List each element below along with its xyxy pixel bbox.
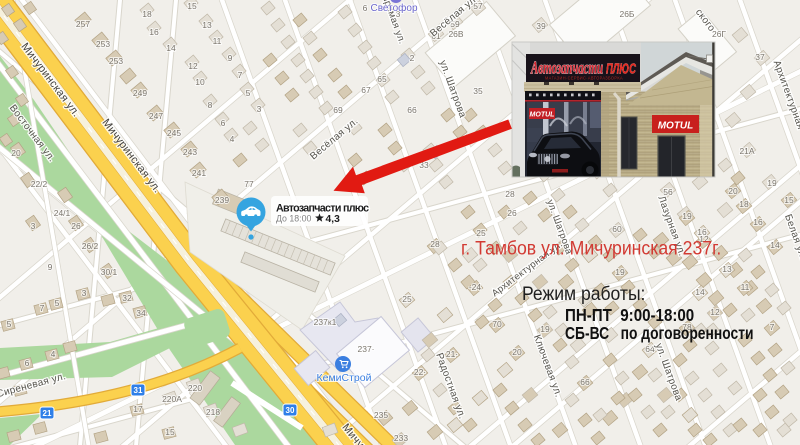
svg-text:Светофор: Светофор [370,2,417,14]
svg-text:31: 31 [134,386,143,395]
svg-text:16: 16 [697,227,707,237]
svg-text:35: 35 [473,86,483,96]
svg-text:60: 60 [612,224,622,234]
svg-text:19: 19 [767,178,777,188]
svg-text:24/1: 24/1 [54,208,71,218]
svg-text:11: 11 [213,36,222,46]
svg-text:7: 7 [238,70,243,80]
svg-text:26В: 26В [448,29,463,39]
svg-text:15: 15 [784,195,794,205]
svg-text:20: 20 [11,148,21,158]
svg-text:245: 245 [167,128,181,138]
svg-text:18: 18 [739,199,749,209]
svg-text:34: 34 [136,308,146,318]
svg-text:15: 15 [187,1,197,11]
svg-text:39: 39 [536,21,546,31]
svg-text:10: 10 [195,77,205,87]
svg-text:77: 77 [244,179,254,189]
svg-text:18: 18 [142,9,152,19]
svg-text:30/1: 30/1 [101,267,118,277]
svg-text:11: 11 [741,282,750,292]
svg-text:г. Тамбов ул. Мичуринская 237г: г. Тамбов ул. Мичуринская 237г. [461,237,721,259]
svg-text:6: 6 [25,358,30,368]
svg-text:9: 9 [48,262,53,272]
svg-text:4: 4 [230,134,235,144]
svg-text:20: 20 [728,186,738,196]
svg-text:26: 26 [71,221,81,231]
svg-text:26/2: 26/2 [82,241,99,251]
svg-text:253: 253 [96,39,110,49]
svg-text:37: 37 [755,52,765,62]
svg-text:235: 235 [374,410,388,420]
svg-text:6: 6 [363,3,368,13]
svg-text:26Г: 26Г [712,29,726,39]
svg-text:9: 9 [228,53,233,63]
svg-text:12: 12 [710,307,720,317]
svg-text:28: 28 [505,189,515,199]
svg-text:26: 26 [507,208,517,218]
svg-text:3: 3 [31,221,36,231]
svg-text:257: 257 [76,19,90,29]
svg-text:MOTUL: MOTUL [658,121,694,132]
svg-text:-24: -24 [469,282,482,292]
svg-text:237·: 237· [357,344,374,354]
svg-text:7: 7 [40,303,45,313]
svg-text:4,3: 4,3 [326,214,341,225]
svg-text:28: 28 [430,239,440,249]
svg-text:21·: 21· [446,349,458,359]
svg-text:21: 21 [43,409,52,418]
svg-text:220А: 220А [162,394,182,404]
svg-text:12: 12 [188,61,198,71]
svg-text:8: 8 [208,100,213,110]
svg-text:220: 220 [188,383,202,393]
svg-text:MOTUL: MOTUL [530,112,555,119]
svg-text:19: 19 [682,211,692,221]
svg-text:237к1: 237к1 [314,317,337,327]
svg-text:19: 19 [615,267,625,277]
svg-text:6: 6 [221,118,226,128]
svg-text:ПН-ПТ 9:00-18:00: ПН-ПТ 9:00-18:00 [565,305,694,326]
svg-text:22·: 22· [414,367,426,377]
svg-text:66: 66 [580,377,590,387]
svg-text:243: 243 [183,147,197,157]
svg-text:14: 14 [166,43,176,53]
svg-text:239: 239 [215,195,229,205]
svg-text:66: 66 [407,105,417,115]
svg-text:67: 67 [361,85,371,95]
svg-text:65: 65 [377,74,387,84]
svg-text:241: 241 [192,168,206,178]
svg-text:4: 4 [51,349,56,359]
svg-text:233: 233 [394,433,408,443]
svg-text:КемиСтрой: КемиСтрой [317,372,372,384]
svg-text:5: 5 [55,298,60,308]
svg-text:Режим работы:: Режим работы: [522,282,645,304]
svg-text:249: 249 [133,88,147,98]
svg-text:15: 15 [165,427,175,437]
svg-text:3: 3 [82,288,87,298]
svg-text:16: 16 [149,27,159,37]
svg-text:247: 247 [149,111,163,121]
svg-text:МАГАЗИН·СЕРВИС·АВТОРАЗБОРКА: МАГАЗИН·СЕРВИС·АВТОРАЗБОРКА [545,75,623,80]
svg-text:5: 5 [7,319,12,329]
svg-text:30: 30 [286,406,295,415]
svg-text:До 18:00: До 18:00 [276,214,312,224]
svg-text:3: 3 [257,104,262,114]
svg-text:70: 70 [492,319,502,329]
svg-text:21А: 21А [739,146,754,156]
svg-text:20: 20 [512,347,522,357]
svg-text:218: 218 [206,407,220,417]
svg-text:14: 14 [770,240,780,250]
svg-text:2: 2 [410,53,415,63]
svg-text:14: 14 [695,287,705,297]
svg-text:17: 17 [133,404,143,414]
svg-text:СБ-ВС по договоренности: СБ-ВС по договоренности [565,323,753,343]
svg-text:32: 32 [122,293,132,303]
svg-text:13: 13 [722,264,732,274]
svg-text:69: 69 [333,105,343,115]
svg-text:25: 25 [402,294,412,304]
svg-text:13: 13 [202,20,212,30]
svg-text:16: 16 [753,217,763,227]
svg-text:253: 253 [109,56,123,66]
svg-text:7: 7 [770,322,775,332]
svg-text:22/2: 22/2 [31,179,48,189]
svg-text:26Б: 26Б [619,9,634,19]
svg-text:5: 5 [246,88,251,98]
